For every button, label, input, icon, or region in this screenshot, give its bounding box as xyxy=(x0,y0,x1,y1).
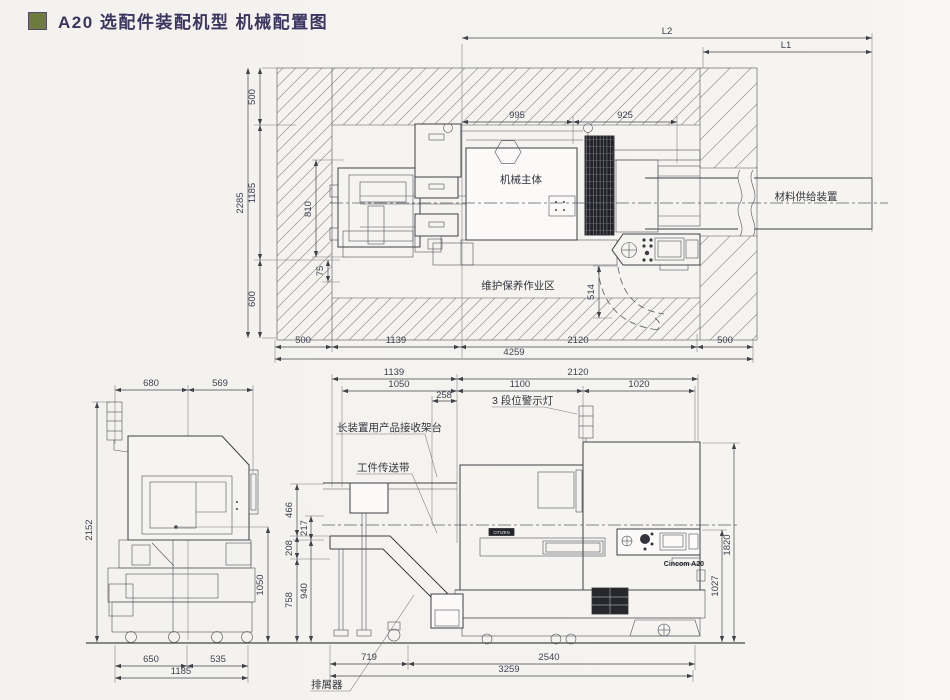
side-view: 680 569 2152 1050 650 535 1185 xyxy=(84,378,268,683)
dim-L2: L2 xyxy=(662,26,673,37)
dim-258: 258 xyxy=(436,390,452,401)
dim-719: 719 xyxy=(361,652,377,663)
drawing-title-bar: A20 选配件装配机型 机械配置图 xyxy=(28,8,328,33)
dim-1027: 1027 xyxy=(710,575,721,596)
brand-label: Cincom A20 xyxy=(664,561,704,568)
plan-view: 机械主体 材料供给装置 维护保养作业区 xyxy=(235,26,888,363)
brand-tag-label: CITIZEN xyxy=(493,530,509,535)
dim-758: 758 xyxy=(284,592,295,608)
dim-217: 217 xyxy=(299,520,310,536)
side-machine xyxy=(107,402,258,643)
dim-2152: 2152 xyxy=(84,519,95,540)
dim-500-bottom-left: 500 xyxy=(295,335,311,346)
dim-680: 680 xyxy=(143,378,159,389)
label-conveyor: 工件传送带 xyxy=(357,461,410,474)
dim-2540: 2540 xyxy=(538,652,559,663)
page-title: A20 选配件装配机型 机械配置图 xyxy=(58,8,328,33)
label-material-supply: 材料供给装置 xyxy=(775,190,838,203)
label-chip-conveyor: 排屑器 xyxy=(311,678,343,691)
label-machine-body: 机械主体 xyxy=(500,173,542,186)
dim-75: 75 xyxy=(315,266,326,277)
machine-configuration-diagram: 机械主体 材料供给装置 维护保养作业区 xyxy=(0,0,950,700)
plan-control-panel xyxy=(612,234,700,270)
dim-995: 995 xyxy=(509,110,525,121)
label-maintenance-area: 维护保养作业区 xyxy=(481,279,555,292)
dim-600: 600 xyxy=(247,291,258,307)
dim-3259: 3259 xyxy=(498,664,519,675)
dim-925: 925 xyxy=(617,110,633,121)
dim-569: 569 xyxy=(212,378,228,389)
dim-2120-front: 2120 xyxy=(567,367,588,378)
label-receiving-stand: 长装置用产品接收架台 xyxy=(337,421,442,434)
dim-650: 650 xyxy=(143,654,159,665)
dim-208: 208 xyxy=(284,540,295,556)
dim-1185: 1185 xyxy=(247,183,258,203)
dim-2120-plan: 2120 xyxy=(567,335,588,346)
label-warning-light: 3 段位警示灯 xyxy=(492,394,554,407)
dim-1185-side: 1185 xyxy=(171,666,191,677)
dim-810: 810 xyxy=(303,201,314,217)
dim-535: 535 xyxy=(210,654,226,665)
dim-4259: 4259 xyxy=(503,347,524,358)
dim-1100: 1100 xyxy=(510,379,530,390)
dim-1020: 1020 xyxy=(628,379,649,390)
dim-500-bottom-right: 500 xyxy=(717,335,733,346)
dim-466: 466 xyxy=(284,502,295,518)
dim-1820: 1820 xyxy=(722,534,733,555)
dim-500-top: 500 xyxy=(247,89,258,105)
dim-1139-front: 1139 xyxy=(384,367,404,378)
title-bullet-square-icon xyxy=(28,12,47,30)
front-machine xyxy=(322,406,740,644)
dim-1050-front: 1050 xyxy=(388,379,409,390)
scanned-drawing-page: A20 选配件装配机型 机械配置图 xyxy=(0,0,950,700)
dim-940: 940 xyxy=(299,583,310,599)
dim-2285: 2285 xyxy=(235,192,246,213)
dim-1050-side: 1050 xyxy=(255,574,266,595)
dim-L1: L1 xyxy=(781,40,792,51)
dim-1139-plan: 1139 xyxy=(386,335,406,346)
dim-514: 514 xyxy=(586,284,597,300)
